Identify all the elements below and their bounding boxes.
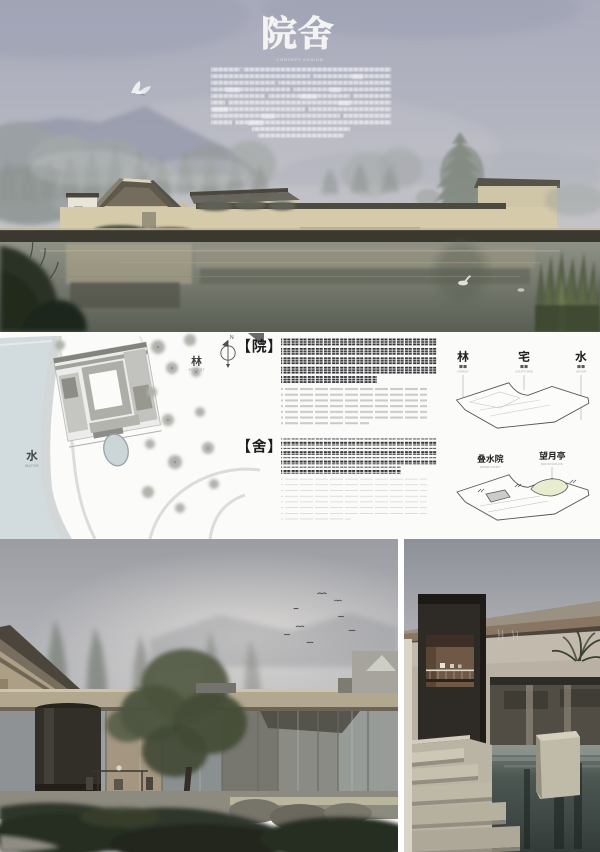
svg-text:CONCEPT DESIGN: CONCEPT DESIGN	[276, 57, 323, 62]
svg-text:COURTYARD: COURTYARD	[515, 370, 532, 374]
svg-text:MOON PAVILION: MOON PAVILION	[541, 462, 563, 466]
svg-text:WATER: WATER	[576, 370, 586, 374]
svg-text:FOREST: FOREST	[189, 368, 206, 372]
svg-text:WATER COURT: WATER COURT	[480, 465, 501, 469]
svg-text:FOREST: FOREST	[457, 370, 469, 374]
svg-text:WATER: WATER	[25, 464, 39, 468]
svg-text:N: N	[230, 335, 234, 341]
